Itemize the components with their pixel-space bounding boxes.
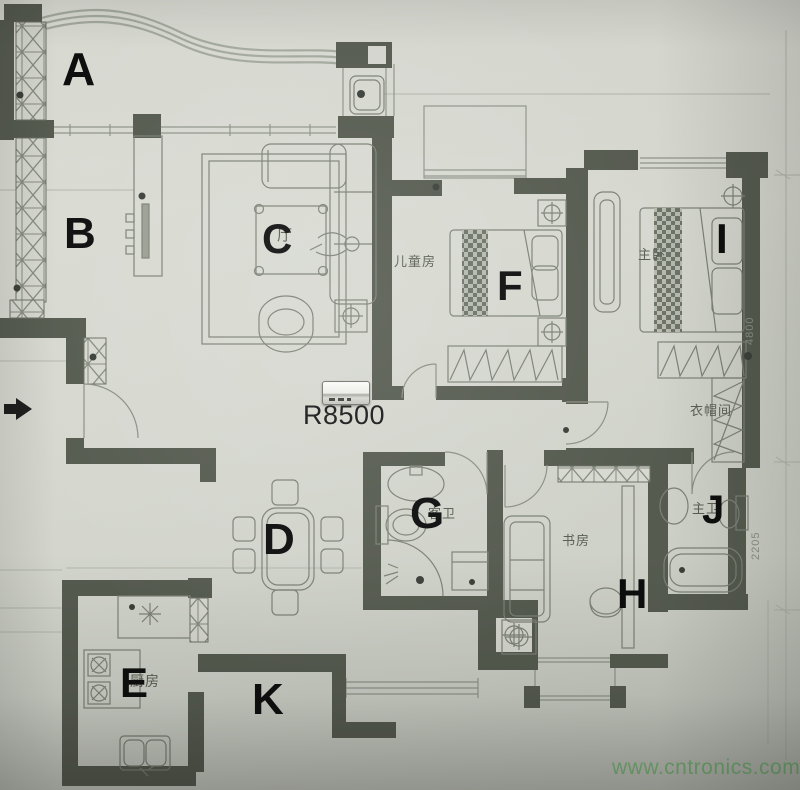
walls-layer: [0, 4, 768, 786]
marker-d: D: [263, 518, 295, 562]
marker-k: K: [252, 678, 284, 722]
marker-j: J: [702, 490, 724, 530]
marker-b: B: [64, 212, 96, 256]
room-label-cloak: 衣帽间: [690, 404, 732, 417]
marker-a: A: [62, 46, 95, 92]
room-label-children: 儿童房: [394, 255, 436, 268]
dimension-label-upper: 4800: [744, 317, 756, 345]
marker-g: G: [410, 492, 444, 536]
device-label: R8500: [303, 400, 385, 431]
marker-e: E: [120, 662, 148, 704]
dimension-label-lower: 2205: [750, 532, 762, 560]
floorplan-photo: 厅 儿童房 主卧 衣帽间 书房 厨房 客卫 主卫 A B C D E F G H…: [0, 0, 800, 790]
marker-f: F: [497, 265, 523, 307]
entry-arrow-icon: [4, 398, 32, 420]
marker-h: H: [617, 573, 647, 615]
watermark: www.cntronics.com: [612, 756, 800, 780]
room-label-study: 书房: [562, 534, 590, 547]
marker-i: I: [716, 218, 728, 260]
marker-c: C: [262, 218, 292, 260]
doors-layer: [84, 364, 734, 507]
room-label-master: 主卧: [638, 248, 666, 261]
